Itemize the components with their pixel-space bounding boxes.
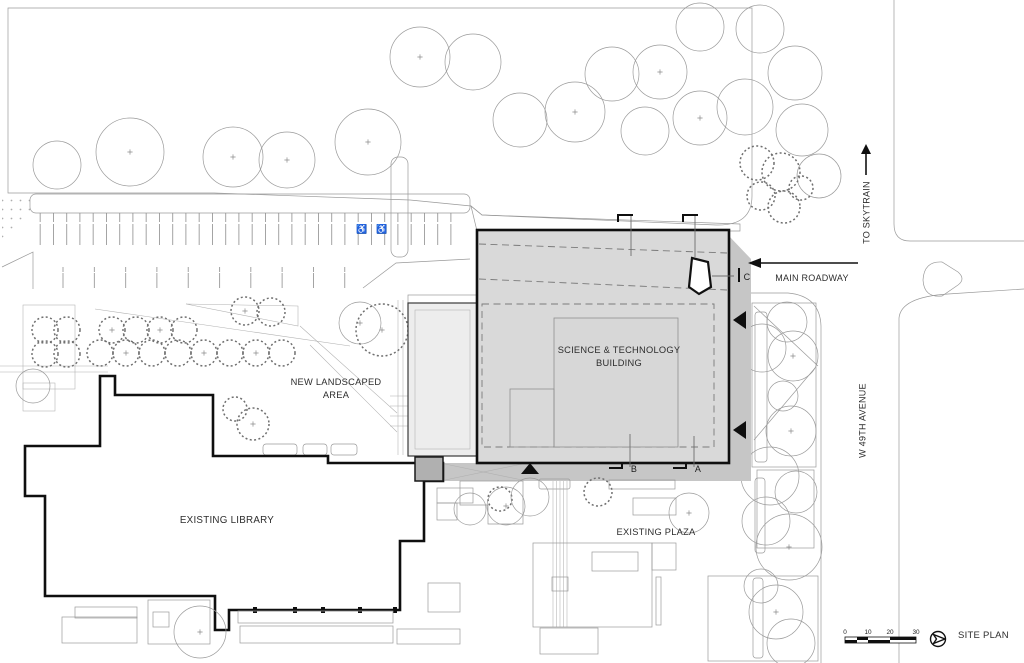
to-skytrain-label: TO SKYTRAIN [861,153,874,273]
roadway-lines [708,0,1024,663]
connector-block [415,457,443,481]
scale-tick-0: 0 [835,626,855,639]
north-arrow-icon [931,632,946,647]
wing-footprint [408,303,477,456]
landscaped-area-label: NEW LANDSCAPED AREA [276,376,396,402]
section-marker-c: C [741,271,753,284]
building-label: SCIENCE & TECHNOLOGY BUILDING [536,344,702,370]
parking-stalls-row-1 [36,213,462,245]
site-plan-drawing: ♿ ♿ [0,0,1024,663]
scale-tick-10: 10 [858,626,878,639]
main-roadway-label: MAIN ROADWAY [752,272,872,285]
site-plan-title: SITE PLAN [958,629,1020,642]
parking-area: ♿ ♿ [2,157,470,289]
existing-library-outline [25,376,443,630]
traffic-island [923,262,962,296]
existing-plaza [437,478,709,654]
site-plan-page: ♿ ♿ [0,0,1024,663]
plaza-label: EXISTING PLAZA [596,526,716,539]
accessible-parking-icon: ♿ [356,223,367,234]
parking-stalls-row-2 [52,267,365,288]
section-marker-a: A [692,463,704,476]
accessible-parking-icon: ♿ [376,223,387,234]
w-49th-avenue-label: W 49TH AVENUE [857,361,870,481]
building-label-line2: BUILDING [536,357,702,370]
stippled-landscape-area [2,8,752,238]
scale-tick-20: 20 [880,626,900,639]
rooftop-element [689,258,711,294]
scale-tick-30: 30 [906,626,926,639]
park-trees [33,3,841,223]
library-label: EXISTING LIBRARY [147,514,307,527]
building-core [554,318,678,447]
building-label-line1: SCIENCE & TECHNOLOGY [536,344,702,357]
section-marker-b: B [628,463,640,476]
direction-arrows [748,144,871,268]
